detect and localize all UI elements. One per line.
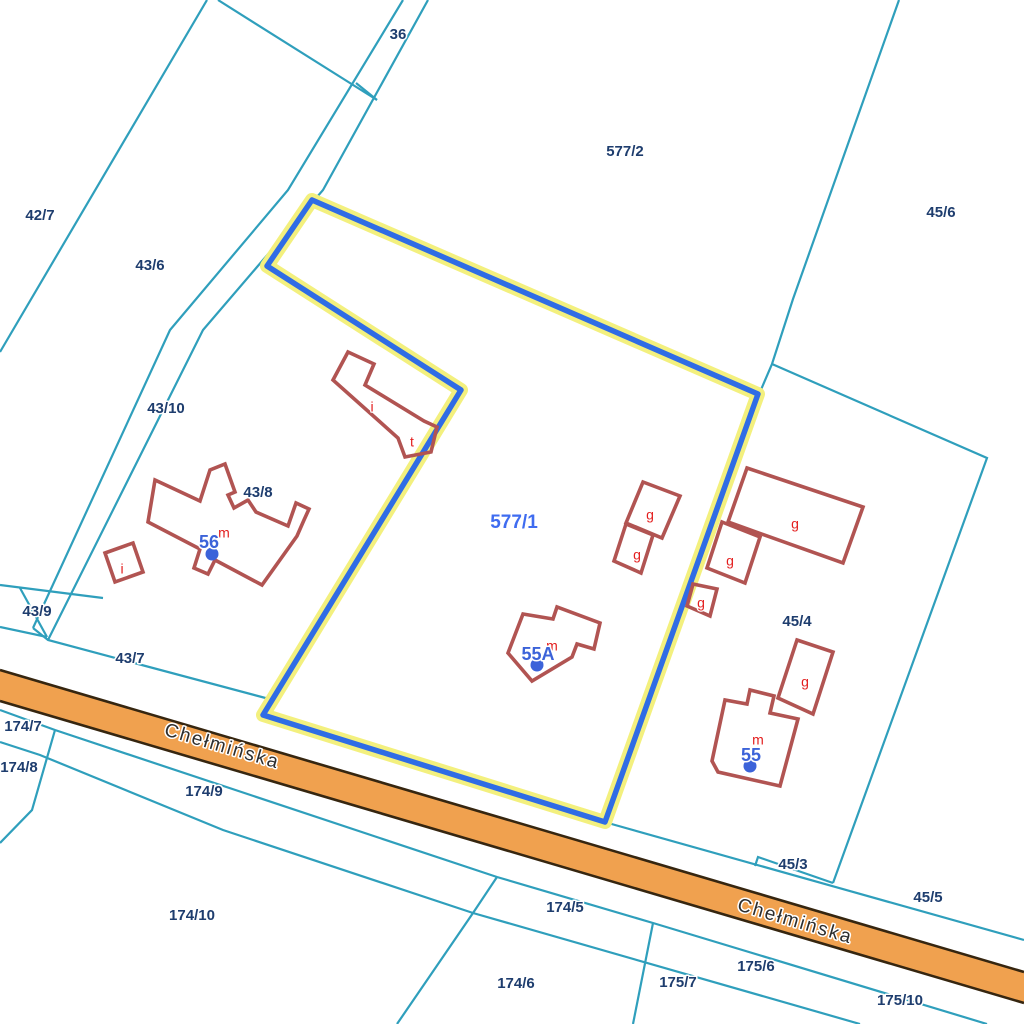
parcel-number-label: 43/10: [147, 400, 185, 417]
building-function-letter: g: [633, 547, 641, 563]
building-outline[interactable]: [105, 543, 143, 582]
parcel-number-label: 36: [390, 26, 407, 43]
building-function-letter: t: [410, 434, 414, 450]
parcel-number-label: 174/9: [185, 783, 223, 800]
parcel-number-label: 45/5: [913, 889, 942, 906]
parcel-number-label: 174/5: [546, 899, 584, 916]
parcel-number-label: 174/10: [169, 907, 215, 924]
address-number-label: 55: [741, 745, 761, 765]
parcel-number-label: 42/7: [25, 207, 54, 224]
parcel-boundary-line: [0, 627, 47, 637]
parcel-boundary-line: [397, 877, 497, 1024]
selected-parcel-halo: [263, 200, 758, 822]
labels-layer: 3642/743/6577/245/643/1043/845/443/943/7…: [0, 26, 955, 1009]
parcel-number-label: 43/6: [135, 257, 164, 274]
parcel-number-label: 174/8: [0, 759, 38, 776]
parcel-number-label: 175/7: [659, 974, 697, 991]
address-number-label: 55A: [521, 644, 554, 664]
parcel-number-label: 175/6: [737, 958, 775, 975]
parcel-boundary-line: [0, 730, 55, 843]
building-function-letter: g: [726, 553, 734, 569]
parcel-number-label: 175/10: [877, 992, 923, 1009]
selected-parcel-number-label: 577/1: [490, 512, 538, 533]
parcel-number-label: 43/9: [22, 603, 51, 620]
road-border-bottom: [0, 701, 1024, 1003]
parcel-number-label: 43/7: [115, 650, 144, 667]
building-function-letter: g: [801, 674, 809, 690]
building-function-letter: i: [120, 561, 123, 577]
parcel-boundary-line: [760, 0, 899, 392]
address-point[interactable]: 55: [741, 745, 761, 773]
parcel-boundary-line: [0, 0, 207, 352]
selected-parcel-layer: [263, 200, 758, 822]
parcel-boundary-line: [633, 923, 653, 1024]
address-number-label: 56: [199, 532, 219, 552]
road-border-top: [0, 670, 1024, 972]
parcel-number-label: 577/2: [606, 143, 644, 160]
building-function-letter: g: [646, 507, 654, 523]
parcel-number-label: 45/4: [782, 613, 812, 630]
map-canvas[interactable]: 3642/743/6577/245/643/1043/845/443/943/7…: [0, 0, 1024, 1024]
address-point[interactable]: 55A: [521, 644, 554, 672]
parcel-boundary-line: [356, 83, 377, 100]
building-function-letter: g: [791, 516, 799, 532]
map-viewport[interactable]: 3642/743/6577/245/643/1043/845/443/943/7…: [0, 0, 1024, 1024]
building-function-letter: g: [697, 595, 705, 611]
building-function-letter: i: [370, 399, 373, 415]
building-function-letter: m: [218, 525, 230, 541]
road-layer: [0, 670, 1024, 1003]
parcel-number-label: 45/6: [926, 204, 955, 221]
parcel-number-label: 174/7: [4, 718, 42, 735]
parcel-boundary-line: [218, 0, 377, 100]
parcel-number-label: 174/6: [497, 975, 535, 992]
address-point[interactable]: 56: [199, 532, 219, 561]
road-surface[interactable]: [0, 670, 1024, 1003]
parcel-boundary-line: [0, 742, 860, 1024]
parcel-number-label: 45/3: [778, 856, 807, 873]
parcel-number-label: 43/8: [243, 484, 272, 501]
